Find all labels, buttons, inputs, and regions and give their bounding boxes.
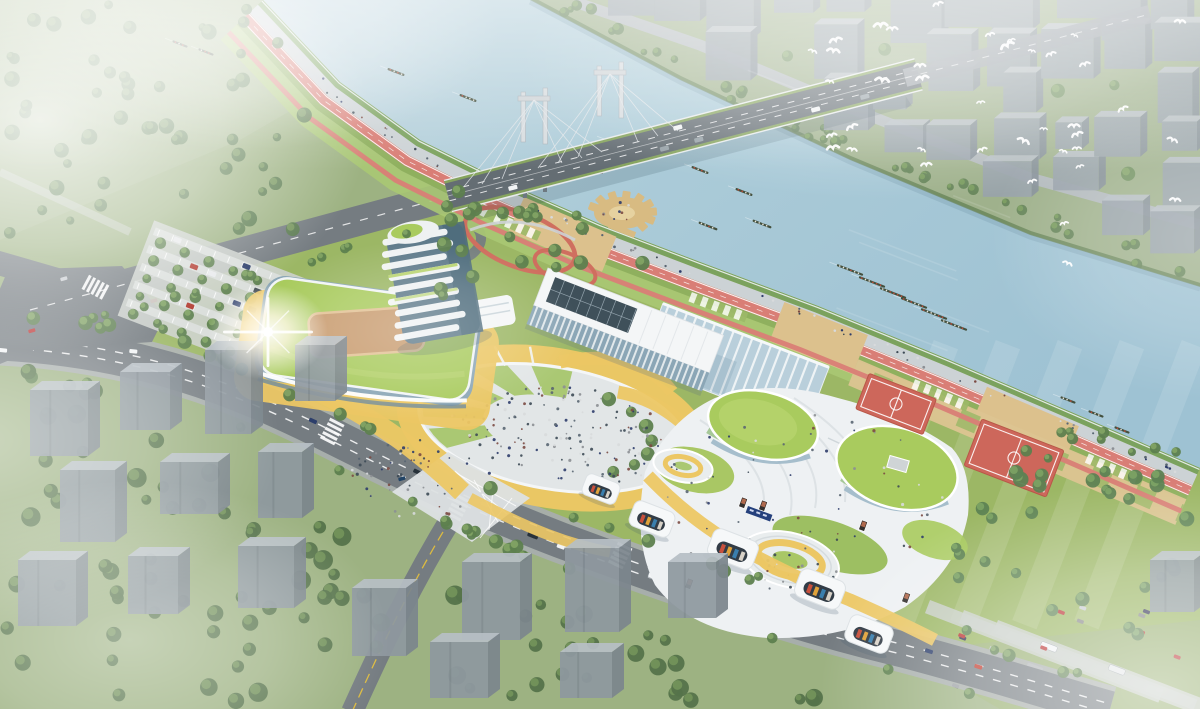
person-dot — [897, 485, 899, 487]
architectural-rendering — [0, 0, 1200, 709]
person-dot — [790, 474, 792, 476]
person-dot — [394, 510, 397, 513]
person-dot — [841, 329, 843, 331]
person-dot — [402, 446, 405, 449]
person-dot — [351, 469, 354, 472]
person-dot — [883, 466, 886, 469]
person-dot — [754, 440, 757, 443]
person-dot — [1112, 447, 1115, 450]
person-dot — [901, 503, 904, 506]
person-dot — [941, 496, 944, 499]
person-dot — [752, 452, 754, 454]
person-dot — [602, 214, 604, 216]
person-dot — [816, 563, 819, 566]
person-dot — [853, 467, 856, 470]
context-block — [430, 633, 500, 698]
person-dot — [812, 427, 815, 430]
person-dot — [550, 216, 553, 219]
context-block — [668, 553, 728, 618]
person-dot — [903, 545, 905, 547]
person-dot — [825, 449, 828, 452]
person-dot — [918, 484, 920, 486]
person-dot — [420, 462, 422, 464]
person-dot — [427, 466, 429, 468]
person-dot — [766, 570, 768, 572]
person-dot — [1004, 394, 1006, 396]
person-dot — [399, 449, 402, 452]
person-dot — [782, 581, 784, 583]
person-dot — [437, 485, 439, 487]
person-dot — [883, 472, 885, 474]
person-dot — [896, 351, 898, 353]
person-dot — [398, 515, 401, 518]
person-dot — [466, 462, 468, 464]
person-dot — [468, 457, 470, 459]
person-dot — [627, 204, 630, 207]
person-dot — [671, 466, 673, 468]
person-dot — [922, 366, 925, 369]
person-dot — [1092, 432, 1094, 434]
person-dot — [748, 471, 750, 473]
person-dot — [480, 491, 483, 494]
person-dot — [565, 219, 568, 222]
person-dot — [451, 488, 453, 490]
person-dot — [488, 472, 491, 475]
person-dot — [399, 452, 401, 454]
person-dot — [921, 536, 924, 539]
person-dot — [566, 223, 568, 225]
person-dot — [1073, 424, 1075, 426]
person-dot — [708, 436, 711, 439]
person-dot — [388, 483, 391, 486]
person-dot — [410, 459, 412, 461]
person-dot — [686, 490, 689, 493]
person-dot — [449, 457, 451, 459]
person-dot — [1166, 466, 1168, 468]
person-dot — [613, 218, 615, 220]
person-dot — [835, 570, 838, 573]
person-dot — [667, 496, 669, 498]
person-dot — [887, 343, 889, 345]
person-dot — [679, 270, 682, 273]
person-dot — [801, 564, 804, 567]
person-dot — [798, 310, 800, 312]
person-dot — [439, 506, 441, 508]
person-dot — [764, 579, 766, 581]
person-dot — [404, 460, 406, 462]
person-dot — [833, 551, 835, 553]
person-dot — [772, 299, 774, 301]
person-dot — [618, 210, 621, 213]
person-dot — [381, 468, 383, 470]
person-dot — [797, 517, 800, 520]
person-dot — [673, 463, 676, 466]
person-dot — [690, 482, 692, 484]
person-dot — [874, 344, 876, 346]
context-block — [565, 539, 631, 632]
person-dot — [613, 246, 616, 249]
person-dot — [761, 295, 763, 297]
person-dot — [358, 458, 360, 460]
person-dot — [407, 488, 410, 491]
person-dot — [836, 539, 838, 541]
person-dot — [839, 494, 841, 496]
person-dot — [843, 334, 845, 336]
person-dot — [773, 553, 776, 556]
person-dot — [459, 505, 462, 508]
person-dot — [400, 473, 403, 476]
person-dot — [837, 533, 839, 535]
person-dot — [849, 333, 851, 335]
person-dot — [407, 447, 409, 449]
person-dot — [689, 272, 691, 274]
person-dot — [810, 433, 812, 435]
person-dot — [974, 380, 977, 383]
person-dot — [428, 460, 430, 462]
person-dot — [390, 462, 392, 464]
person-dot — [370, 495, 372, 497]
person-dot — [990, 395, 992, 397]
person-dot — [872, 429, 875, 432]
person-dot — [626, 219, 628, 221]
person-dot — [409, 485, 411, 487]
person-dot — [707, 477, 709, 479]
person-dot — [851, 421, 854, 424]
person-dot — [853, 429, 855, 431]
person-dot — [838, 508, 840, 510]
person-dot — [1165, 463, 1168, 466]
person-dot — [412, 451, 414, 453]
person-dot — [366, 473, 368, 475]
person-dot — [418, 453, 421, 456]
person-dot — [706, 528, 708, 530]
person-dot — [959, 380, 961, 382]
person-dot — [712, 476, 714, 478]
person-dot — [798, 308, 800, 310]
person-dot — [397, 475, 400, 478]
person-dot — [753, 459, 755, 461]
person-dot — [387, 444, 390, 447]
person-dot — [772, 519, 774, 521]
person-dot — [676, 468, 678, 470]
person-dot — [900, 439, 902, 441]
sun-glint — [208, 284, 328, 380]
person-dot — [776, 563, 778, 565]
person-dot — [678, 521, 681, 524]
person-dot — [365, 487, 368, 490]
person-dot — [359, 463, 362, 466]
person-dot — [811, 449, 814, 452]
person-dot — [423, 457, 425, 459]
person-dot — [1146, 461, 1148, 463]
person-dot — [814, 414, 817, 417]
person-dot — [903, 351, 905, 353]
person-dot — [834, 329, 837, 332]
person-dot — [804, 547, 806, 549]
person-dot — [926, 513, 929, 516]
person-dot — [737, 521, 739, 523]
person-dot — [788, 554, 790, 556]
person-dot — [874, 432, 876, 434]
person-dot — [664, 265, 666, 267]
context-block — [462, 553, 532, 640]
person-dot — [634, 247, 637, 250]
person-dot — [743, 426, 746, 429]
person-dot — [435, 500, 438, 503]
person-dot — [633, 249, 635, 251]
person-dot — [444, 493, 446, 495]
person-dot — [447, 512, 450, 515]
person-dot — [1066, 422, 1068, 424]
person-dot — [413, 459, 415, 461]
person-dot — [426, 492, 429, 495]
person-dot — [1144, 456, 1147, 459]
person-dot — [1169, 467, 1172, 470]
person-dot — [707, 502, 710, 505]
person-dot — [728, 435, 730, 437]
person-dot — [356, 473, 359, 476]
person-dot — [375, 452, 377, 454]
person-dot — [789, 586, 792, 589]
person-dot — [1174, 470, 1177, 473]
person-dot — [389, 489, 391, 491]
person-dot — [419, 439, 421, 441]
person-dot — [916, 357, 919, 360]
person-dot — [801, 532, 803, 534]
person-dot — [1145, 458, 1147, 460]
person-dot — [921, 514, 923, 516]
person-dot — [601, 234, 603, 236]
person-dot — [854, 535, 856, 537]
person-dot — [619, 201, 622, 204]
person-dot — [413, 512, 416, 515]
context-block — [560, 643, 624, 698]
person-dot — [809, 531, 811, 533]
person-dot — [1060, 420, 1062, 422]
person-dot — [797, 566, 800, 569]
person-dot — [379, 462, 381, 464]
person-dot — [783, 443, 785, 445]
person-dot — [768, 587, 770, 589]
person-dot — [907, 359, 909, 361]
person-dot — [352, 475, 354, 477]
person-dot — [369, 456, 371, 458]
person-dot — [813, 314, 815, 316]
person-dot — [387, 467, 390, 470]
person-dot — [437, 450, 440, 453]
person-dot — [656, 256, 658, 258]
person-dot — [364, 460, 366, 462]
person-dot — [370, 475, 372, 477]
person-dot — [798, 313, 800, 315]
person-dot — [423, 487, 425, 489]
person-dot — [630, 249, 633, 252]
person-dot — [621, 211, 624, 214]
scene-canvas — [0, 0, 1200, 709]
